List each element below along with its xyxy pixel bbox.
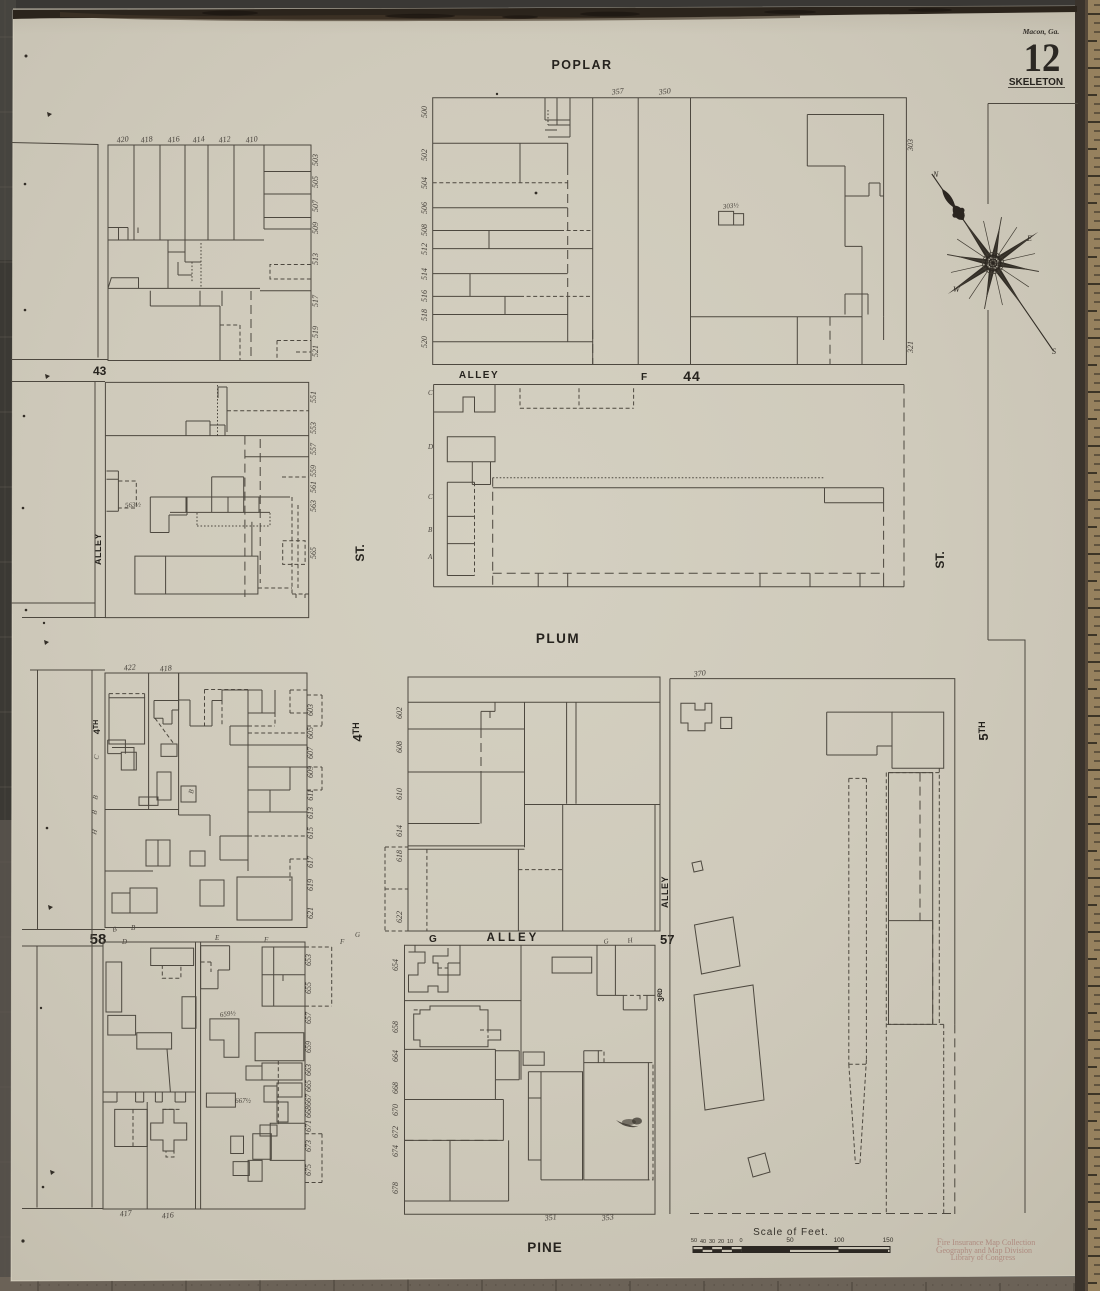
svg-text:509: 509: [311, 222, 320, 234]
svg-text:F: F: [339, 938, 345, 946]
svg-text:414: 414: [192, 134, 205, 145]
svg-text:557: 557: [309, 442, 318, 455]
svg-text:422: 422: [123, 662, 136, 672]
svg-text:B: B: [428, 526, 433, 534]
svg-text:654: 654: [391, 959, 400, 971]
svg-text:G: G: [355, 931, 360, 939]
svg-text:513: 513: [311, 253, 320, 265]
svg-text:12: 12: [1024, 37, 1061, 81]
svg-text:E: E: [1026, 234, 1032, 243]
svg-text:416: 416: [167, 134, 180, 145]
svg-text:565: 565: [309, 547, 318, 559]
svg-text:559: 559: [309, 465, 318, 477]
svg-text:E: E: [214, 934, 220, 942]
svg-text:ALLEY: ALLEY: [459, 370, 499, 381]
svg-text:100: 100: [834, 1237, 845, 1244]
svg-text:10: 10: [727, 1239, 733, 1245]
svg-text:519: 519: [311, 326, 320, 338]
svg-text:G: G: [429, 934, 437, 945]
svg-text:617: 617: [306, 855, 315, 868]
svg-text:610: 610: [395, 788, 404, 800]
svg-text:30: 30: [709, 1239, 715, 1245]
svg-text:418: 418: [159, 663, 172, 673]
svg-text:D: D: [427, 443, 433, 451]
svg-text:507: 507: [311, 199, 320, 212]
svg-text:667: 667: [304, 1093, 313, 1106]
svg-text:611: 611: [306, 789, 315, 800]
svg-text:665: 665: [304, 1080, 313, 1092]
svg-text:502: 502: [420, 149, 429, 161]
svg-text:619: 619: [306, 879, 315, 891]
svg-text:C: C: [428, 493, 433, 501]
svg-text:521: 521: [311, 345, 320, 357]
svg-text:659: 659: [304, 1041, 313, 1053]
svg-text:653: 653: [304, 954, 313, 966]
svg-text:B: B: [131, 924, 136, 932]
svg-text:353: 353: [600, 1212, 614, 1222]
svg-text:357: 357: [610, 86, 625, 96]
svg-text:418: 418: [140, 134, 153, 145]
svg-text:410: 410: [245, 134, 258, 145]
svg-text:43: 43: [93, 364, 107, 378]
svg-text:621: 621: [306, 907, 315, 919]
svg-text:655: 655: [304, 982, 313, 994]
svg-text:417: 417: [119, 1208, 133, 1218]
svg-text:50: 50: [691, 1238, 697, 1244]
svg-text:150: 150: [883, 1237, 894, 1244]
svg-text:416: 416: [161, 1210, 174, 1220]
svg-text:520: 520: [420, 336, 429, 348]
svg-text:420: 420: [116, 134, 129, 145]
svg-text:667½: 667½: [235, 1097, 252, 1105]
svg-text:ALLEY: ALLEY: [487, 932, 540, 944]
svg-text:603: 603: [306, 704, 315, 716]
svg-text:505: 505: [311, 176, 320, 188]
svg-text:675: 675: [304, 1164, 313, 1176]
svg-text:512: 512: [420, 243, 429, 255]
svg-text:PINE: PINE: [527, 1240, 563, 1255]
svg-text:607: 607: [306, 746, 315, 759]
svg-text:321: 321: [906, 341, 915, 354]
svg-text:503: 503: [311, 154, 320, 166]
svg-text:609: 609: [306, 766, 315, 778]
svg-text:518: 518: [420, 309, 429, 321]
svg-text:553: 553: [309, 422, 318, 434]
svg-text:602: 602: [395, 707, 404, 719]
svg-text:678: 678: [391, 1182, 400, 1194]
svg-text:622: 622: [395, 911, 404, 923]
svg-text:618: 618: [395, 850, 404, 862]
svg-text:40: 40: [700, 1239, 706, 1245]
svg-text:504: 504: [420, 177, 429, 189]
svg-text:Library of Congress: Library of Congress: [951, 1253, 1015, 1262]
svg-text:508: 508: [420, 224, 429, 236]
svg-text:350: 350: [657, 86, 671, 96]
svg-text:ST.: ST.: [933, 551, 947, 568]
svg-text:506: 506: [420, 202, 429, 214]
svg-text:ALLEY: ALLEY: [660, 876, 670, 908]
svg-text:351: 351: [543, 1212, 557, 1222]
svg-text:57: 57: [660, 932, 674, 947]
svg-text:303: 303: [906, 139, 915, 152]
svg-text:615: 615: [306, 827, 315, 839]
svg-text:370: 370: [692, 668, 706, 678]
svg-text:672: 672: [391, 1126, 400, 1138]
svg-text:F: F: [641, 372, 647, 383]
svg-text:517: 517: [311, 294, 320, 307]
svg-text:412: 412: [218, 134, 231, 145]
svg-text:500: 500: [420, 106, 429, 118]
svg-text:0: 0: [739, 1238, 742, 1244]
svg-text:613: 613: [306, 807, 315, 819]
svg-text:668: 668: [304, 1106, 313, 1118]
svg-text:670: 670: [391, 1104, 400, 1116]
svg-text:SKELETON: SKELETON: [1009, 77, 1063, 88]
svg-text:663: 663: [304, 1064, 313, 1076]
svg-text:Macon, Ga.: Macon, Ga.: [1022, 27, 1060, 36]
svg-text:664: 664: [391, 1050, 400, 1062]
svg-text:605: 605: [306, 727, 315, 739]
svg-text:PLUM: PLUM: [536, 631, 580, 646]
svg-text:674: 674: [391, 1145, 400, 1157]
svg-text:516: 516: [420, 290, 429, 302]
svg-text:20: 20: [718, 1239, 724, 1245]
svg-text:44: 44: [683, 368, 701, 384]
svg-text:673: 673: [304, 1140, 313, 1152]
svg-text:S: S: [1052, 347, 1056, 356]
svg-text:POPLAR: POPLAR: [551, 58, 612, 72]
svg-text:514: 514: [420, 268, 429, 280]
svg-text:614: 614: [395, 825, 404, 837]
svg-text:F: F: [263, 936, 269, 944]
svg-text:ST.: ST.: [353, 544, 367, 561]
svg-text:608: 608: [395, 741, 404, 753]
svg-text:563½: 563½: [125, 500, 142, 509]
svg-text:A: A: [427, 553, 433, 561]
svg-text:C: C: [428, 389, 433, 397]
svg-text:671: 671: [304, 1120, 313, 1132]
svg-text:551: 551: [309, 391, 318, 403]
svg-text:563: 563: [309, 500, 318, 512]
svg-text:N: N: [932, 170, 939, 179]
svg-text:668: 668: [391, 1082, 400, 1094]
svg-text:658: 658: [391, 1021, 400, 1033]
svg-text:561: 561: [309, 481, 318, 493]
svg-text:50: 50: [786, 1237, 794, 1244]
svg-text:657: 657: [304, 1011, 313, 1024]
